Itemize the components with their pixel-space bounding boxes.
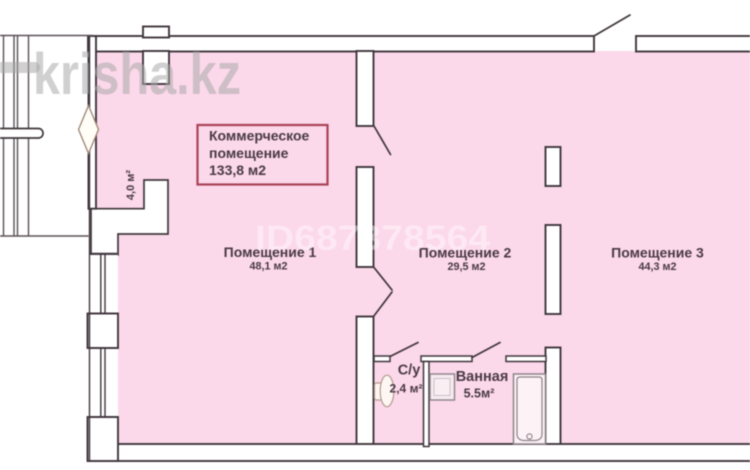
svg-text:С/у: С/у (398, 363, 421, 379)
svg-text:5.5м²: 5.5м² (464, 387, 495, 401)
svg-text:Коммерческое: Коммерческое (209, 128, 310, 144)
svg-text:133,8 м2: 133,8 м2 (209, 162, 266, 178)
svg-text:ID687378564: ID687378564 (255, 219, 491, 258)
svg-text:2,4 м²: 2,4 м² (390, 382, 423, 396)
svg-text:помещение: помещение (209, 145, 289, 161)
svg-text:48,1 м2: 48,1 м2 (249, 261, 287, 273)
svg-text:krisha.kz: krisha.kz (33, 42, 241, 107)
svg-text:Помещение 3: Помещение 3 (611, 245, 704, 261)
svg-text:4,0 м²: 4,0 м² (125, 170, 137, 200)
svg-text:44,3 м2: 44,3 м2 (638, 261, 676, 273)
svg-text:29,5 м2: 29,5 м2 (447, 261, 485, 273)
svg-text:Ванная: Ванная (456, 369, 509, 385)
